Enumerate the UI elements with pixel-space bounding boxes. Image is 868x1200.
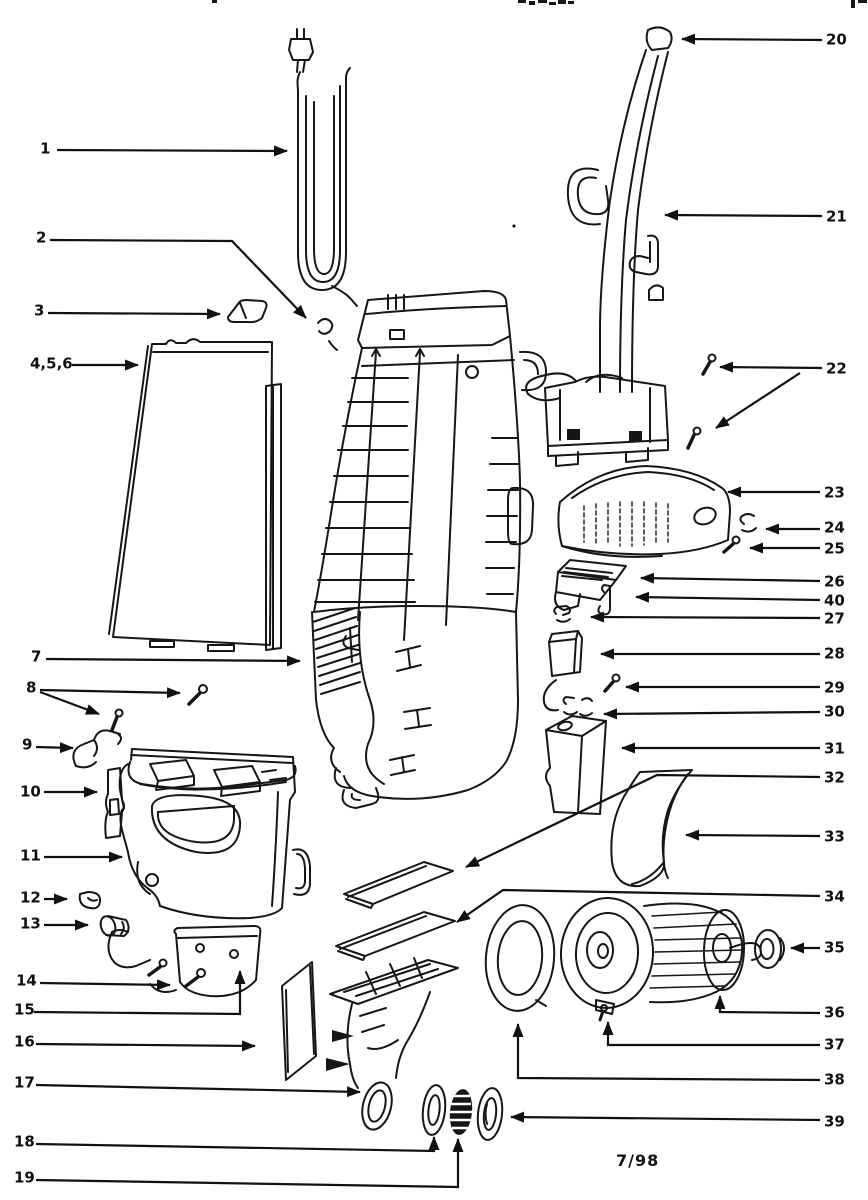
callout-label-32: 32 — [824, 769, 845, 787]
filter-32-drawing — [344, 862, 453, 908]
scanned-parts-diagram-page: 1234,5,678910111213141516171819202122232… — [0, 0, 868, 1200]
callout-3: 3 — [34, 302, 220, 320]
callout-label-1: 1 — [40, 140, 50, 158]
clips-30-drawing — [564, 697, 593, 716]
callout-30: 30 — [604, 703, 845, 721]
leader-line — [36, 1044, 255, 1046]
callout-8: 8 — [26, 679, 180, 715]
callout-label-7: 7 — [31, 648, 41, 666]
callout-13: 13 — [20, 915, 88, 933]
cowl-33-drawing — [611, 770, 692, 886]
callout-19: 19 — [14, 1139, 458, 1187]
screw-25-drawing — [724, 537, 740, 553]
switch-28-drawing — [544, 631, 582, 710]
callout-label-33: 33 — [824, 828, 845, 846]
callout-label-10: 10 — [20, 783, 41, 801]
callout-9: 9 — [22, 736, 73, 754]
leader-line — [682, 39, 822, 40]
callout-label-31: 31 — [824, 740, 845, 758]
callout-21: 21 — [665, 208, 847, 226]
callout-36: 36 — [720, 996, 845, 1022]
callout-7: 7 — [31, 648, 300, 666]
callout-label-27: 27 — [824, 610, 845, 628]
filter-34-drawing — [336, 912, 455, 960]
callout-32: 32 — [466, 769, 845, 868]
bracket-3-drawing — [228, 300, 267, 322]
callout-23: 23 — [728, 484, 845, 502]
callout-layer: 1234,5,678910111213141516171819202122232… — [14, 31, 847, 1188]
callout-label-2: 2 — [36, 229, 46, 247]
leader-line — [518, 1024, 820, 1080]
callout-label-23: 23 — [824, 484, 845, 502]
grommet-12-drawing — [80, 892, 100, 908]
leader-line — [720, 367, 822, 368]
bracket-31-drawing — [546, 716, 606, 814]
handle-drawing — [568, 27, 672, 392]
callout-40: 40 — [636, 592, 845, 610]
scan-artifacts — [212, 0, 867, 228]
base-housing-drawing — [120, 749, 310, 918]
callout-label-17: 17 — [14, 1074, 35, 1092]
callout-label-30: 30 — [824, 703, 845, 721]
callout-label-38: 38 — [824, 1071, 845, 1089]
callout-label-20: 20 — [826, 31, 847, 49]
callout-24: 24 — [766, 519, 845, 537]
callout-28: 28 — [601, 645, 845, 663]
leader-line — [40, 692, 99, 714]
leader-line — [604, 712, 820, 714]
callout-label-4-5-6: 4,5,6 — [30, 355, 73, 373]
screw-14-drawing — [108, 930, 205, 992]
handle-bracket-drawing — [526, 373, 668, 466]
leader-line — [720, 996, 820, 1013]
callout-label-40: 40 — [824, 592, 845, 610]
callout-label-16: 16 — [14, 1033, 35, 1051]
leader-line — [591, 617, 820, 618]
callout-label-8: 8 — [26, 679, 36, 697]
callout-label-39: 39 — [824, 1113, 845, 1131]
callout-1: 1 — [40, 140, 287, 158]
callout-label-13: 13 — [20, 915, 41, 933]
callout-39: 39 — [511, 1113, 845, 1131]
callout-label-24: 24 — [824, 519, 845, 537]
callout-label-26: 26 — [824, 573, 845, 591]
main-body-drawing — [312, 291, 546, 808]
callout-16: 16 — [14, 1033, 255, 1051]
striped-seal-19-drawing — [448, 1088, 475, 1136]
leader-line — [608, 1022, 820, 1045]
callout-20: 20 — [682, 31, 847, 49]
callout-33: 33 — [686, 828, 845, 846]
callout-18: 18 — [14, 1133, 434, 1152]
callout-label-22: 22 — [826, 360, 847, 378]
diagram-date-code: 7/98 — [616, 1151, 659, 1170]
leader-line — [57, 150, 287, 151]
leader-line — [36, 1137, 434, 1151]
callout-12: 12 — [20, 889, 67, 907]
callout-17: 17 — [14, 1074, 360, 1093]
callout-38: 38 — [518, 1024, 845, 1089]
hood-23-drawing — [558, 466, 730, 557]
callout-4-5-6: 4,5,6 — [30, 355, 138, 373]
callout-label-36: 36 — [824, 1004, 845, 1022]
ring-39-drawing — [475, 1087, 504, 1141]
callout-label-28: 28 — [824, 645, 845, 663]
callout-label-35: 35 — [824, 939, 845, 957]
seal-ring-38-drawing — [482, 902, 559, 1014]
callout-label-19: 19 — [14, 1169, 35, 1187]
parts-diagram: 1234,5,678910111213141516171819202122232… — [0, 0, 868, 1200]
callout-10: 10 — [20, 783, 97, 801]
outer-bag-drawing — [109, 339, 281, 651]
callout-29: 29 — [626, 679, 845, 697]
clip-2-drawing — [318, 319, 337, 350]
leader-line — [34, 971, 240, 1014]
callout-label-25: 25 — [824, 540, 845, 558]
leader-line — [40, 690, 180, 693]
bracket-9-drawing — [73, 730, 121, 767]
callout-label-11: 11 — [20, 847, 41, 865]
callout-label-21: 21 — [826, 208, 847, 226]
callout-label-12: 12 — [20, 889, 41, 907]
callout-25: 25 — [750, 540, 845, 558]
leader-line — [48, 313, 220, 314]
callout-31: 31 — [622, 740, 845, 758]
callout-label-34: 34 — [824, 888, 845, 906]
leader-line — [665, 215, 822, 216]
callout-label-9: 9 — [22, 736, 32, 754]
leader-line — [716, 373, 800, 428]
leader-line — [36, 747, 73, 748]
callout-label-18: 18 — [14, 1133, 35, 1151]
callout-label-3: 3 — [34, 302, 44, 320]
ring-18-drawing — [420, 1084, 447, 1136]
callout-22: 22 — [716, 360, 847, 429]
leader-line — [636, 597, 820, 600]
callout-label-14: 14 — [16, 972, 37, 990]
leader-line — [46, 659, 300, 661]
vent-26-drawing — [555, 560, 626, 610]
clip-24-drawing — [740, 514, 756, 532]
callout-26: 26 — [641, 573, 845, 591]
callout-label-37: 37 — [824, 1036, 845, 1054]
leader-line — [457, 890, 820, 922]
screw-29-drawing — [605, 675, 620, 692]
leader-line — [36, 1085, 360, 1092]
leader-line — [686, 835, 820, 836]
leader-line — [511, 1117, 820, 1120]
side-panel-16-drawing — [282, 962, 316, 1080]
callout-label-15: 15 — [14, 1001, 35, 1019]
callout-27: 27 — [591, 610, 845, 628]
duct-17-drawing — [326, 958, 458, 1133]
callout-37: 37 — [608, 1022, 845, 1054]
leader-line — [641, 578, 820, 581]
callout-14: 14 — [16, 972, 170, 990]
leader-line — [466, 775, 820, 867]
roller-13-drawing — [98, 914, 128, 937]
callout-label-29: 29 — [824, 679, 845, 697]
leader-line — [50, 240, 306, 318]
callout-35: 35 — [791, 939, 845, 957]
screws-22-drawing — [688, 355, 716, 449]
power-cord-drawing — [289, 29, 357, 306]
callout-11: 11 — [20, 847, 122, 865]
